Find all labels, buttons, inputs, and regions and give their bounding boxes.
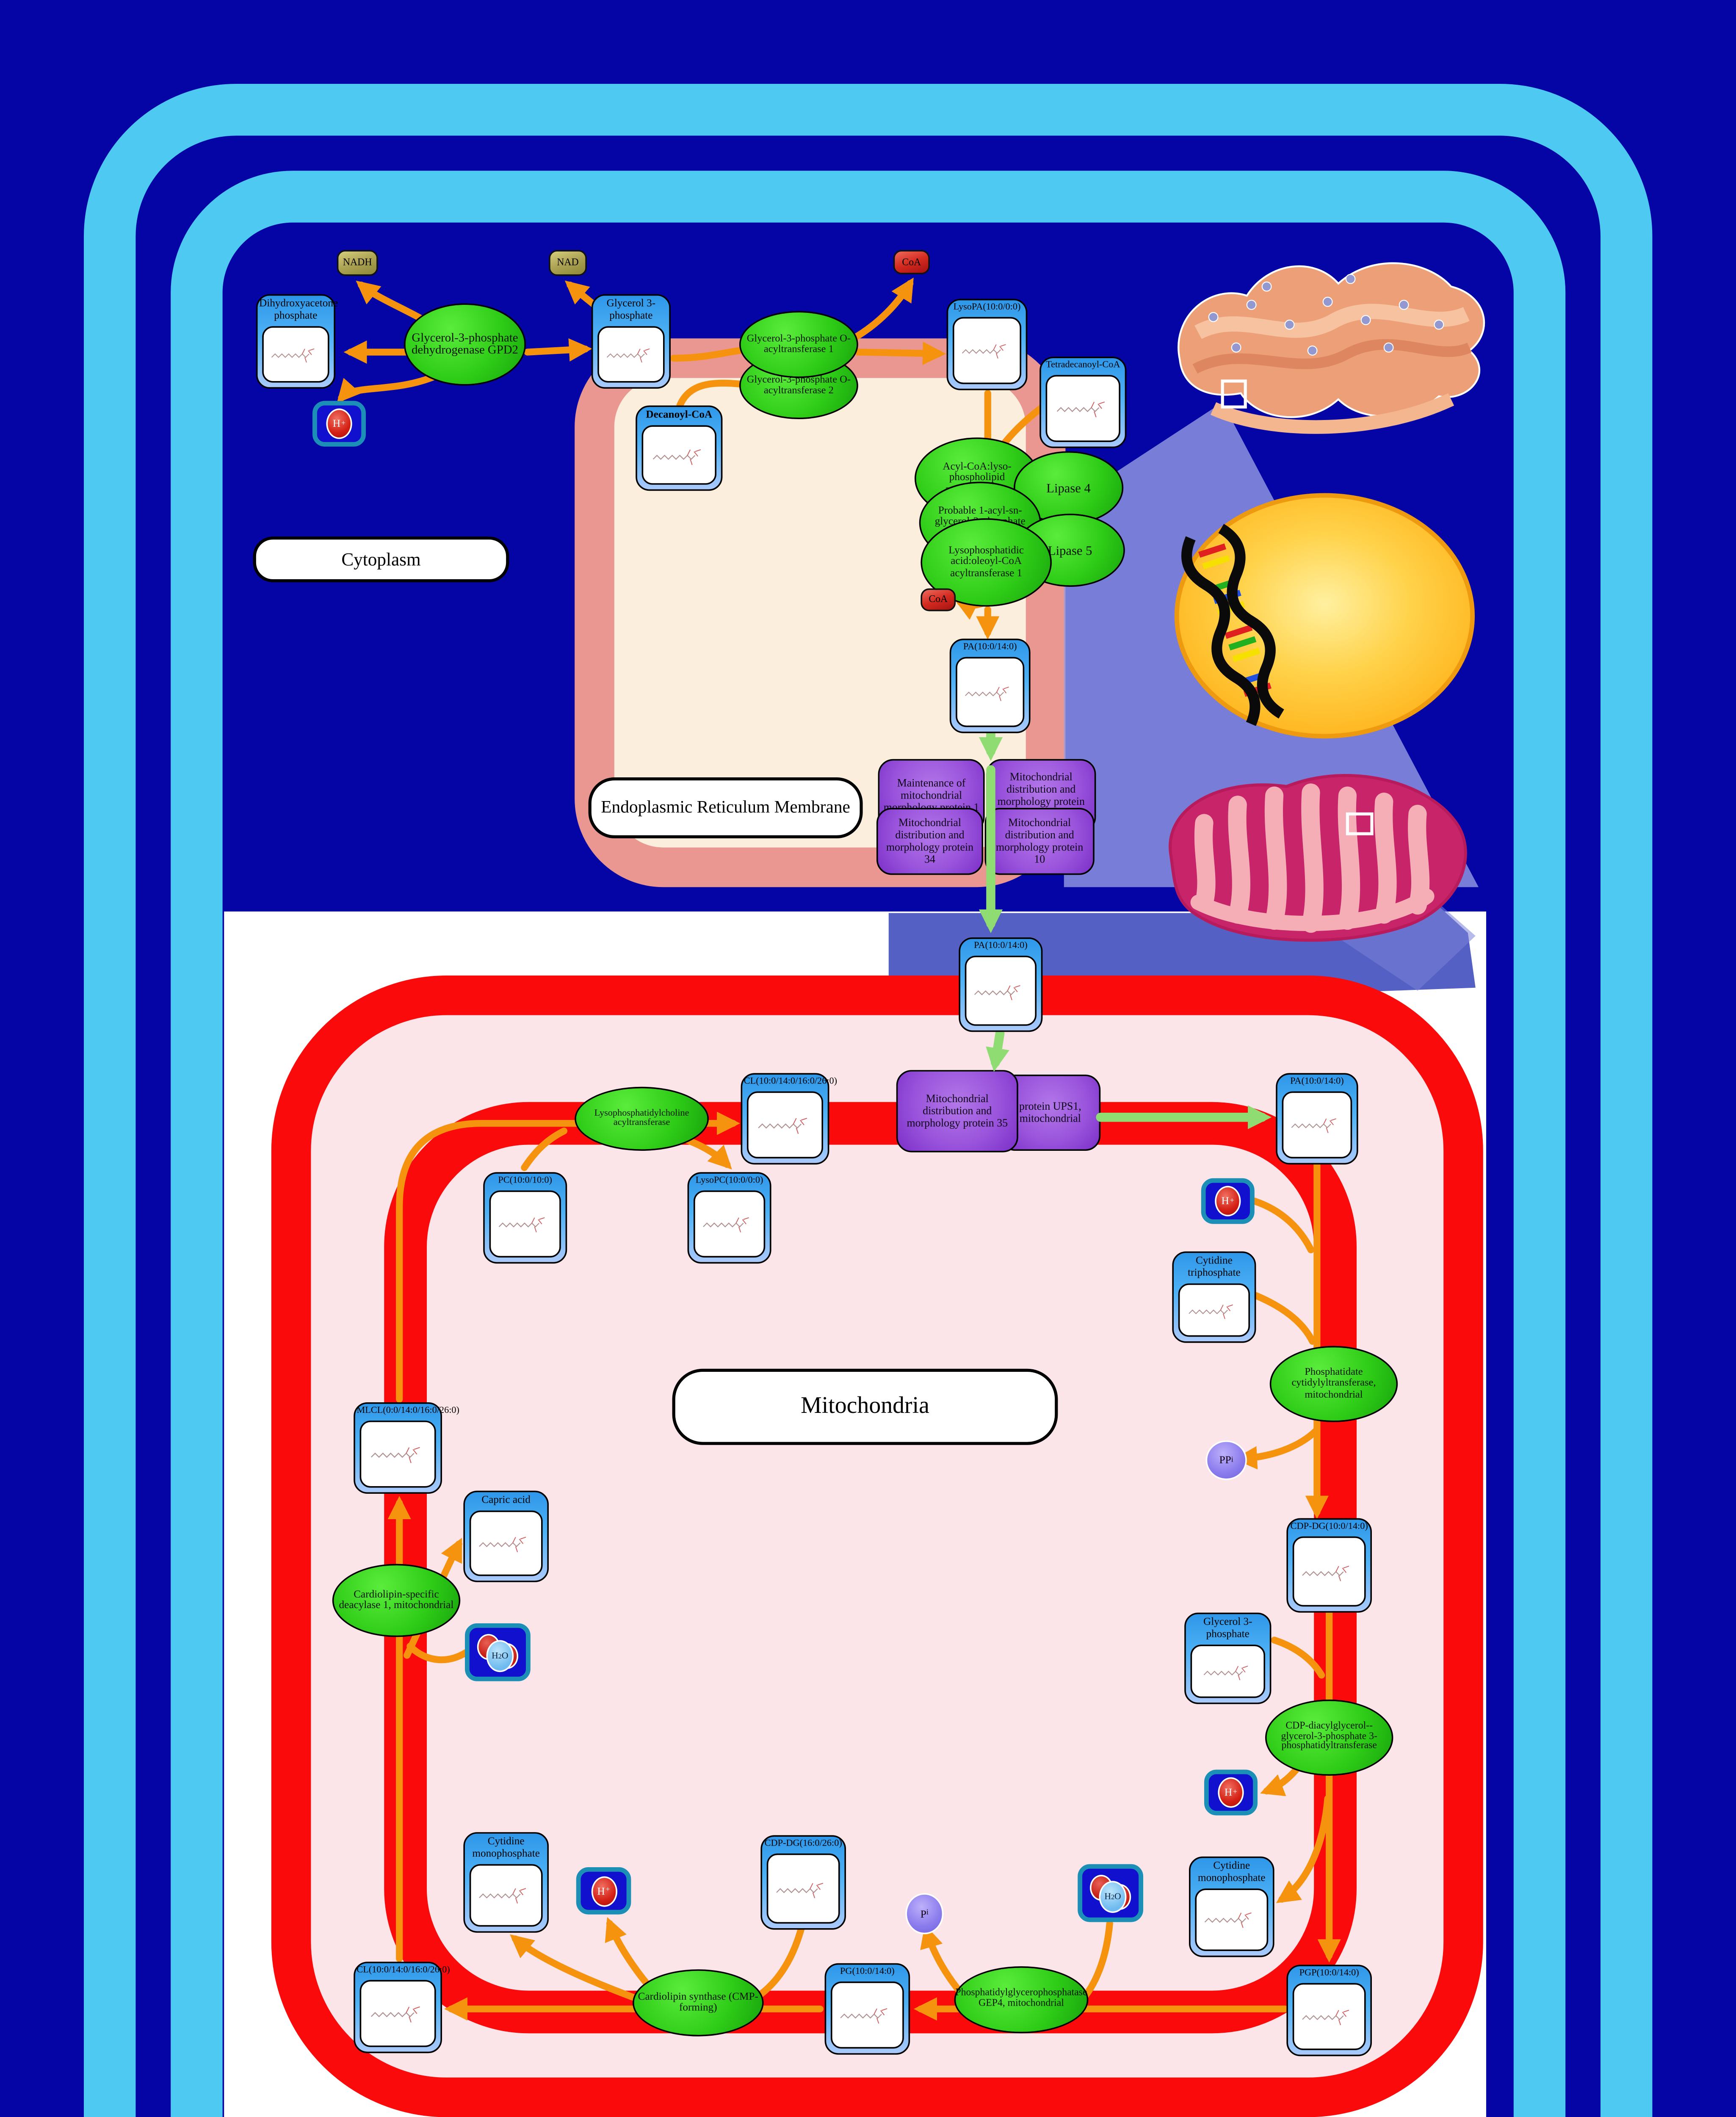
metabolite-tetradecanoyl-coa[interactable]: Tetradecanoyl-CoA (1039, 357, 1126, 448)
enzyme-pcyt2[interactable]: Phosphatidate cytidylyltransferase, mito… (1270, 1346, 1398, 1422)
metabolite-label: CL(10:0/14:0/16:0/26:0) (355, 1963, 441, 1978)
metabolite-label: Glycerol 3-phosphate (1186, 1614, 1270, 1642)
metabolite-cl-top[interactable]: CL(10:0/14:0/16:0/26:0) (741, 1073, 829, 1164)
molecule-structure (470, 1511, 543, 1575)
metabolite-label: Tetradecanoyl-CoA (1041, 358, 1125, 373)
ion-ppi[interactable]: PPi (1206, 1440, 1247, 1480)
molecule-structure (965, 956, 1037, 1025)
enzyme-gep4[interactable]: Phosphatidylglycerophosphatase GEP4, mit… (954, 1966, 1089, 2033)
molecule-structure (1046, 375, 1120, 441)
enzyme-label: Phosphatidylglycerophosphatase GEP4, mit… (955, 1989, 1087, 2010)
metabolite-pa-outer[interactable]: PA(10:0/14:0) (959, 937, 1042, 1032)
metabolite-label: CDP-DG(10:0/14:0) (1288, 1520, 1370, 1534)
enzyme-label: Lysophosphatidylcholine acyltransferase (578, 1109, 705, 1129)
metabolite-label: Cytidine monophosphate (1191, 1858, 1273, 1885)
metabolite-label: PA(10:0/14:0) (951, 640, 1029, 655)
ion-pi[interactable]: Pi (905, 1893, 943, 1934)
metabolite-label: PGP(10:0/14:0) (1288, 1966, 1370, 1981)
enzyme-gpat1[interactable]: Glycerol-3-phosphate O-acyltransferase 1 (739, 311, 858, 378)
metabolite-capric-acid[interactable]: Capric acid (463, 1491, 549, 1582)
molecule-structure (1191, 1644, 1265, 1697)
molecule-structure (1293, 1537, 1366, 1606)
proton-icon: H+ (326, 409, 352, 439)
enzyme-cls[interactable]: Cardiolipin synthase (CMP-forming) (633, 1969, 764, 2036)
mitochondrion-illustration (1153, 756, 1479, 951)
metabolite-pa-er[interactable]: PA(10:0/14:0) (950, 638, 1031, 733)
metabolite-label: LysoPC(10:0/0:0) (689, 1174, 770, 1188)
metabolite-lysopc[interactable]: LysoPC(10:0/0:0) (688, 1172, 771, 1263)
enzyme-label: Phosphatidate cytidylyltransferase, mito… (1273, 1368, 1395, 1400)
enzyme-label: CDP-diacylglycerol--glycerol-3-phosphate… (1268, 1722, 1390, 1754)
metabolite-mlcl[interactable]: MLCL(0:0/14:0/16:0/26:0) (354, 1402, 442, 1494)
proton-icon: H+ (591, 1876, 616, 1906)
molecule-structure (470, 1863, 543, 1926)
enzyme-cds[interactable]: CDP-diacylglycerol--glycerol-3-phosphate… (1265, 1700, 1393, 1776)
metabolite-label: MLCL(0:0/14:0/16:0/26:0) (355, 1404, 441, 1419)
mitochondria-label: Mitochondria (672, 1369, 1058, 1445)
metabolite-cmp-right[interactable]: Cytidine monophosphate (1189, 1857, 1274, 1957)
enzyme-lpcat[interactable]: Lysophosphatidylcholine acyltransferase (575, 1087, 709, 1151)
molecule-structure (360, 1980, 436, 2046)
cofactor-coa-er[interactable]: CoA (921, 589, 956, 611)
molecule-structure (1178, 1283, 1250, 1336)
er-illustration (1168, 241, 1497, 479)
enzyme-label: Glycerol-3-phosphate O-acyltransferase 1 (742, 334, 855, 355)
molecule-structure (489, 1191, 561, 1257)
metabolite-pa-inner[interactable]: PA(10:0/14:0) (1276, 1073, 1358, 1164)
pathway-canvas: Maintenance of mitochondrial morphology … (0, 0, 1736, 2117)
molecule-structure (597, 326, 664, 382)
metabolite-label: Cytidine triphosphate (1174, 1253, 1255, 1280)
molecule-structure (360, 1421, 436, 1487)
molecule-structure (767, 1854, 840, 1923)
metabolite-ctp[interactable]: Cytidine triphosphate (1172, 1252, 1256, 1343)
molecule-structure (747, 1092, 823, 1158)
metabolite-lysopa[interactable]: LysoPA(10:0/0:0) (947, 299, 1028, 390)
molecule-structure (831, 1982, 904, 2048)
metabolite-pc[interactable]: PC(10:0/10:0) (483, 1172, 567, 1263)
enzyme-label: Cardiolipin-specific deacylase 1, mitoch… (335, 1589, 457, 1612)
ion-h2o-gep4[interactable]: H2O (1078, 1864, 1143, 1922)
metabolite-cdp-dg2[interactable]: CDP-DG(16:0/26:0) (760, 1835, 846, 1929)
metabolite-cl-bottom[interactable]: CL(10:0/14:0/16:0/26:0) (354, 1962, 442, 2053)
molecule-structure (1195, 1888, 1268, 1950)
molecule-structure (694, 1191, 765, 1257)
metabolite-label: Capric acid (465, 1492, 547, 1508)
water-icon: H2O (1099, 1881, 1127, 1913)
enzyme-label: Glycerol-3-phosphate dehydrogenase GPD2 (407, 332, 523, 357)
metabolite-label: PA(10:0/14:0) (1277, 1075, 1357, 1089)
ion-hplus-ctp[interactable]: H+ (1201, 1178, 1255, 1224)
metabolite-pg[interactable]: PG(10:0/14:0) (825, 1963, 910, 2055)
enzyme-label: Glycerol-3-phosphate O-acyltransferase 2 (742, 375, 855, 396)
enzyme-label: Cardiolipin synthase (CMP-forming) (636, 1992, 760, 2014)
molecule-structure (1282, 1092, 1352, 1158)
metabolite-label: PA(10:0/14:0) (960, 939, 1041, 954)
metabolite-label: PC(10:0/10:0) (485, 1174, 566, 1188)
enzyme-gpd2[interactable]: Glycerol-3-phosphate dehydrogenase GPD2 (404, 303, 526, 385)
metabolite-label: Cytidine monophosphate (465, 1834, 547, 1861)
ion-hplus-g3p[interactable]: H+ (1204, 1770, 1258, 1816)
nucleus-illustration (1171, 491, 1479, 741)
metabolite-label: Glycerol 3-phosphate (593, 296, 669, 323)
ion-hplus-cytoplasm[interactable]: H+ (312, 401, 366, 447)
metabolite-decanoyl-coa[interactable]: Decanoyl-CoA (636, 406, 722, 491)
metabolite-label: CDP-DG(16:0/26:0) (762, 1837, 844, 1852)
metabolite-g3p-cytoplasm[interactable]: Glycerol 3-phosphate (592, 294, 671, 389)
ion-h2o-cld1[interactable]: H2O (465, 1623, 531, 1681)
cofactor-nad[interactable]: NAD (549, 250, 587, 276)
enzyme-label: Lysophosphatidic acid:oleoyl-CoA acyltra… (924, 546, 1049, 579)
molecule-structure (262, 326, 329, 382)
enzyme-label: Lipase 4 (1046, 481, 1091, 495)
molecule-structure (956, 657, 1024, 726)
metabolite-g3p-mito[interactable]: Glycerol 3-phosphate (1184, 1613, 1271, 1704)
cofactor-nadh[interactable]: NADH (337, 250, 378, 276)
molecule-structure (953, 317, 1021, 383)
metabolite-label: LysoPA(10:0/0:0) (948, 300, 1026, 315)
cofactor-coa-top[interactable]: CoA (893, 250, 930, 274)
er-membrane-label: Endoplasmic Reticulum Membrane (589, 777, 863, 838)
metabolite-label: PG(10:0/14:0) (826, 1965, 908, 1979)
proton-icon: H+ (1218, 1777, 1244, 1808)
enzyme-label: Lipase 5 (1048, 544, 1092, 557)
molecule-structure (642, 426, 716, 484)
enzyme-cld1[interactable]: Cardiolipin-specific deacylase 1, mitoch… (332, 1564, 460, 1637)
metabolite-cmp-left[interactable]: Cytidine monophosphate (463, 1832, 549, 1933)
metabolite-dhap[interactable]: Dihydroxyacetone phosphate (256, 294, 335, 389)
metabolite-label: CL(10:0/14:0/16:0/26:0) (742, 1075, 828, 1089)
water-icon: H2O (486, 1640, 514, 1672)
metabolite-label: Decanoyl-CoA (637, 407, 721, 423)
metabolite-cdp-dg1[interactable]: CDP-DG(10:0/14:0) (1286, 1518, 1372, 1613)
metabolite-label: Dihydroxyacetone phosphate (257, 296, 334, 323)
cytoplasm-label: Cytoplasm (253, 536, 509, 582)
molecule-structure (1293, 1983, 1366, 2049)
metabolite-pgp[interactable]: PGP(10:0/14:0) (1286, 1965, 1372, 2056)
ion-hplus-cls[interactable]: H+ (576, 1867, 631, 1915)
proton-icon: H+ (1215, 1186, 1241, 1216)
